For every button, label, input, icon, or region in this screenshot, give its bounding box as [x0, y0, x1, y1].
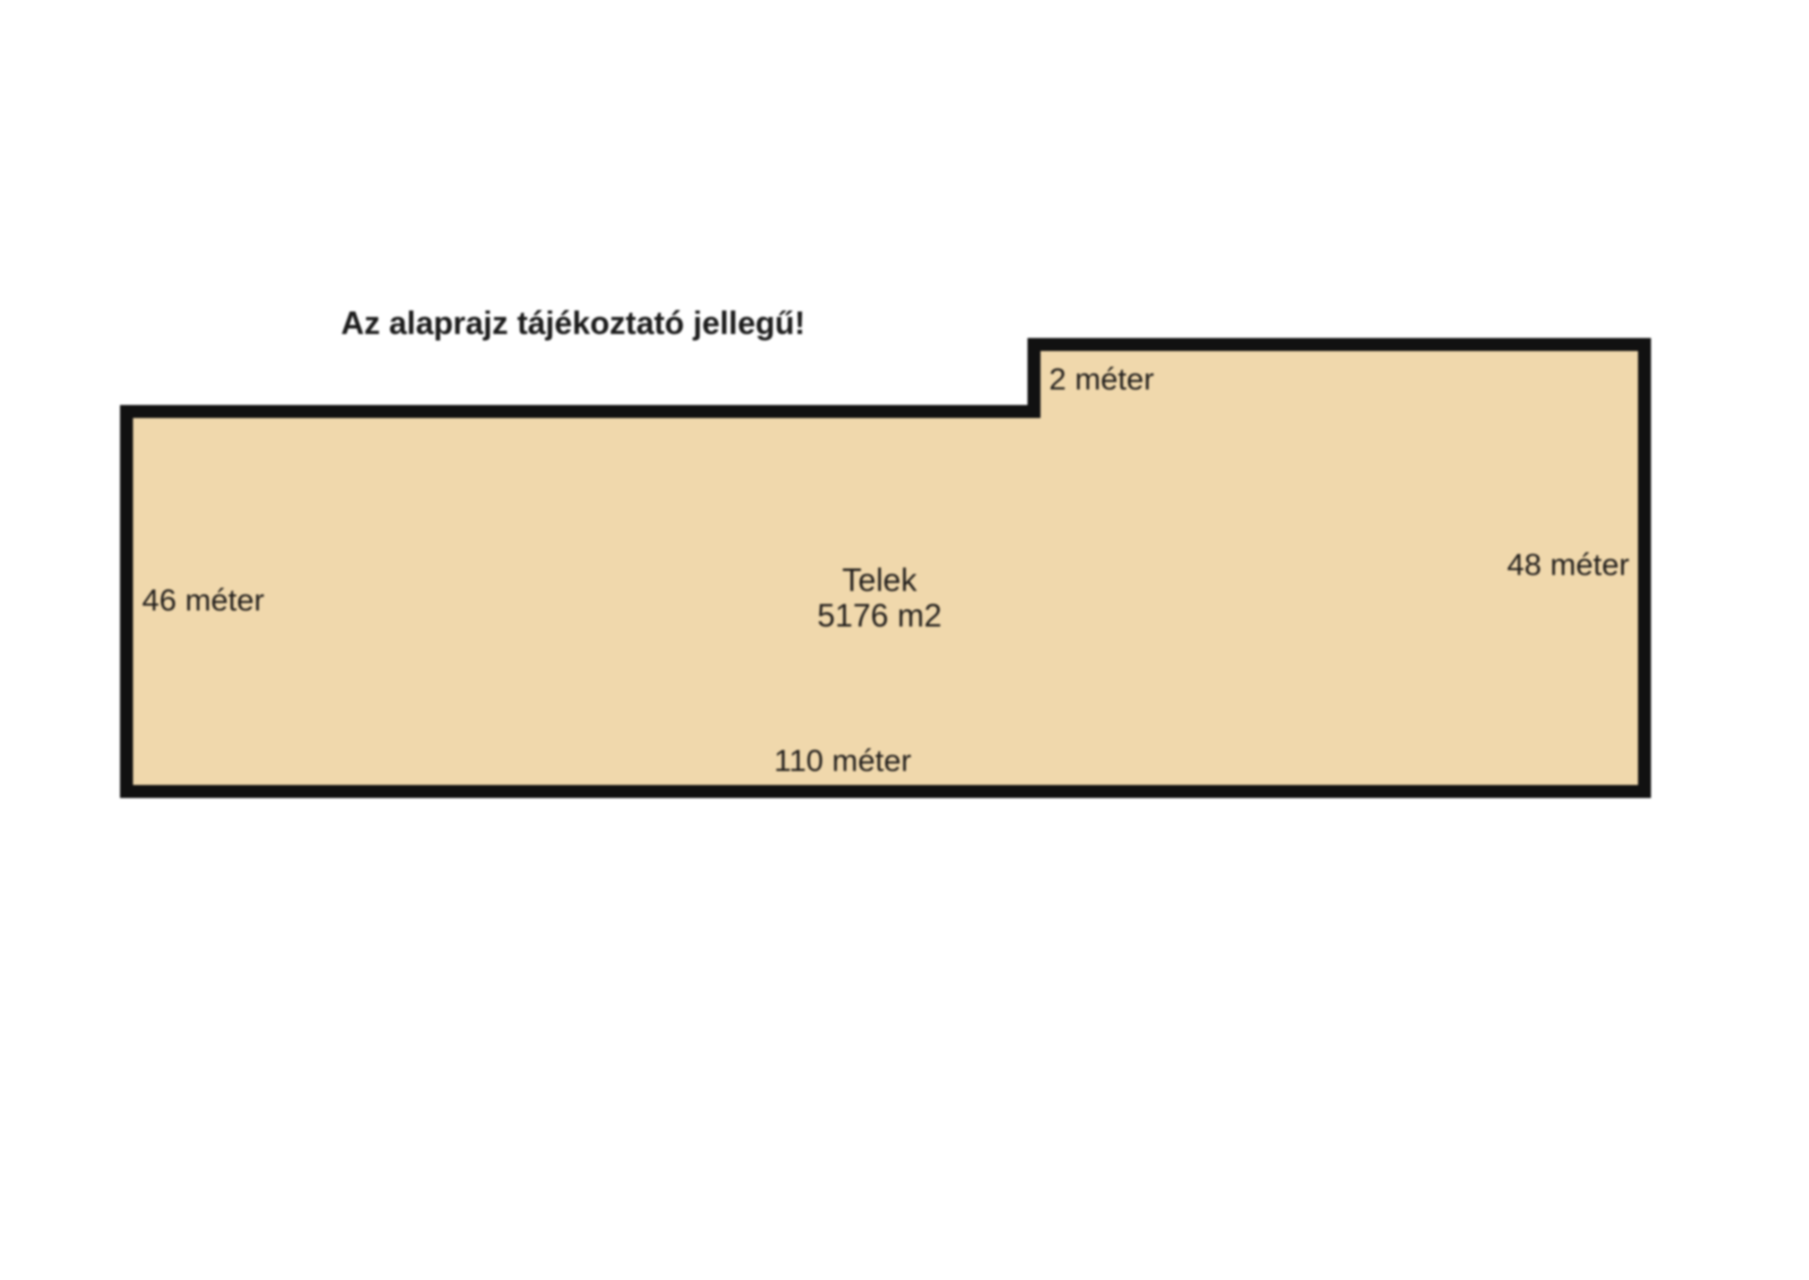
svg-text:110 méter: 110 méter	[774, 743, 911, 778]
svg-text:2 méter: 2 méter	[1049, 362, 1154, 397]
svg-text:Telek: Telek	[842, 562, 918, 598]
svg-text:48 méter: 48 méter	[1507, 547, 1629, 582]
svg-text:46 méter: 46 méter	[142, 583, 264, 618]
svg-text:5176 m2: 5176 m2	[817, 598, 942, 634]
svg-text:Az alaprajz tájékoztató jelleg: Az alaprajz tájékoztató jellegű!	[341, 305, 805, 341]
